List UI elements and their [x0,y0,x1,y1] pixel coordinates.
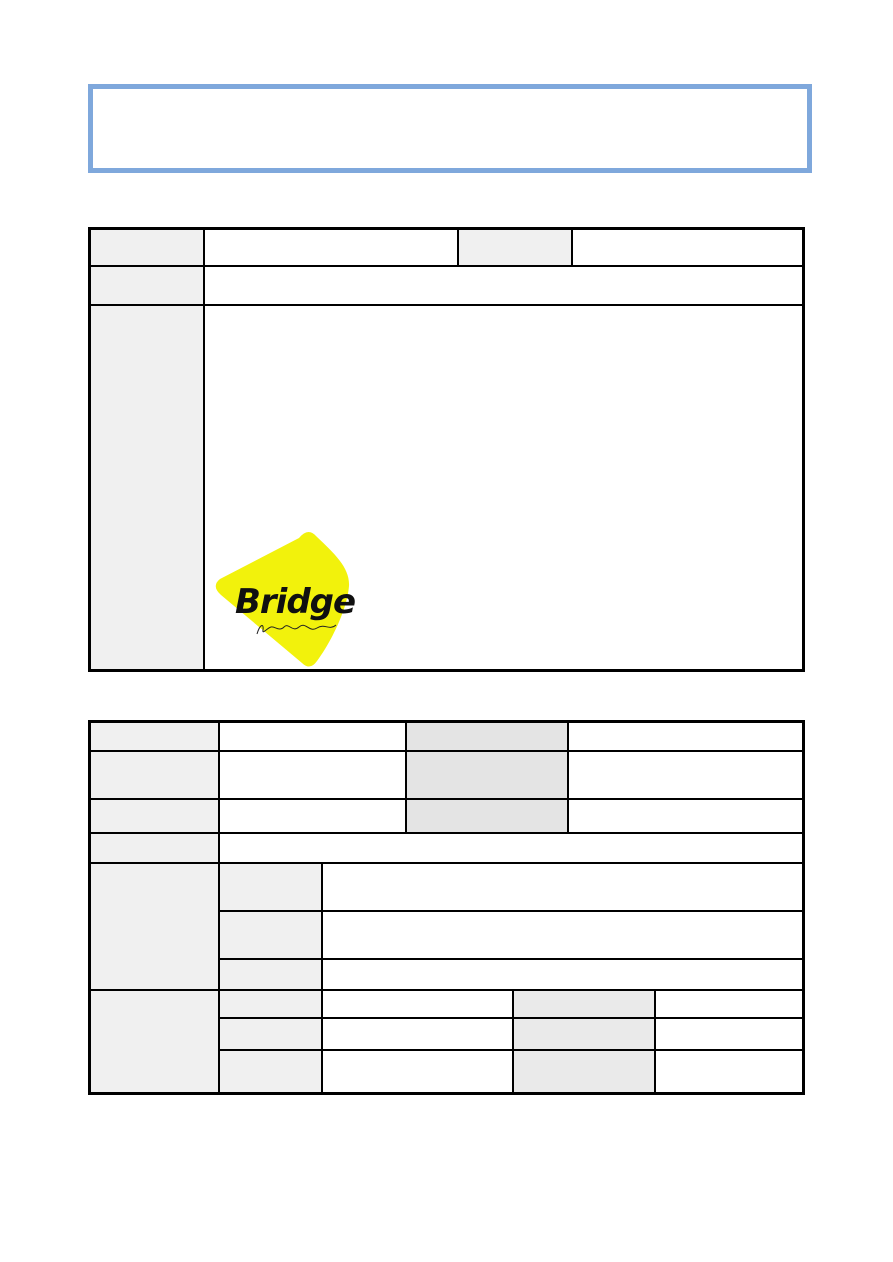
t2-g1-r1-sublabel-cell [219,863,322,911]
t2-g1-r2-input-cell[interactable] [322,911,804,959]
bridge-logo-graphic: Bridge [209,524,357,671]
t2-r2-label-cell [90,751,219,799]
t2-g1-r2-sublabel-cell [219,911,322,959]
t2-r4-label-cell [90,833,219,863]
t2-r3-label-cell [90,799,219,833]
table-row [90,722,804,751]
t2-r1-label2-cell [406,722,568,751]
t1-r1-label2-cell [458,229,572,266]
table-row [90,863,804,911]
t2-r3-input2-cell[interactable] [568,799,804,833]
t2-r3-label2-cell [406,799,568,833]
t2-g2-r2-input-cell[interactable] [322,1018,513,1050]
t2-g2-r1-input-cell[interactable] [322,990,513,1018]
t2-g2-r1-label2-cell [513,990,655,1018]
t2-g2-r2-sublabel-cell [219,1018,322,1050]
document-page: { "page": { "background": "#ffffff", "ac… [0,0,893,1262]
bridge-logo: Bridge [209,524,357,671]
logo-wordmark: Bridge [235,582,355,622]
table-row [90,990,804,1018]
table-row [90,799,804,833]
t2-r2-input2-cell[interactable] [568,751,804,799]
t2-g2-r3-label2-cell [513,1050,655,1094]
t1-r2-input-cell[interactable] [204,266,804,305]
t2-g2-r3-sublabel-cell [219,1050,322,1094]
table-row [90,266,804,305]
t1-r1-label-cell [90,229,204,266]
upper-form-table: Bridge [88,227,805,672]
t2-r1-label-cell [90,722,219,751]
t2-g2-r1-input2-cell[interactable] [655,990,804,1018]
table-row [90,751,804,799]
t2-g2-r2-input2-cell[interactable] [655,1018,804,1050]
t2-g2-label-cell [90,990,219,1094]
t2-g2-r3-input-cell[interactable] [322,1050,513,1094]
lower-form-table [88,720,805,1095]
t2-r1-input-cell[interactable] [219,722,406,751]
table-row: Bridge [90,305,804,671]
t2-r2-input-cell[interactable] [219,751,406,799]
table-row [90,229,804,266]
t2-g2-r3-input2-cell[interactable] [655,1050,804,1094]
t2-r3-input-cell[interactable] [219,799,406,833]
title-entry-box[interactable] [88,84,812,173]
t2-g1-r3-sublabel-cell [219,959,322,990]
t1-r2-label-cell [90,266,204,305]
t2-g2-r2-label2-cell [513,1018,655,1050]
t1-r1-input-cell[interactable] [204,229,458,266]
t2-r2-label2-cell [406,751,568,799]
t2-g1-r1-input-cell[interactable] [322,863,804,911]
t1-r1-input2-cell[interactable] [572,229,804,266]
t2-g2-r1-sublabel-cell [219,990,322,1018]
t2-r4-input-cell[interactable] [219,833,804,863]
t2-g1-label-cell [90,863,219,990]
t2-g1-r3-input-cell[interactable] [322,959,804,990]
t2-r1-input2-cell[interactable] [568,722,804,751]
table-row [90,833,804,863]
t1-r3-content-cell[interactable]: Bridge [204,305,804,671]
t1-r3-label-cell [90,305,204,671]
